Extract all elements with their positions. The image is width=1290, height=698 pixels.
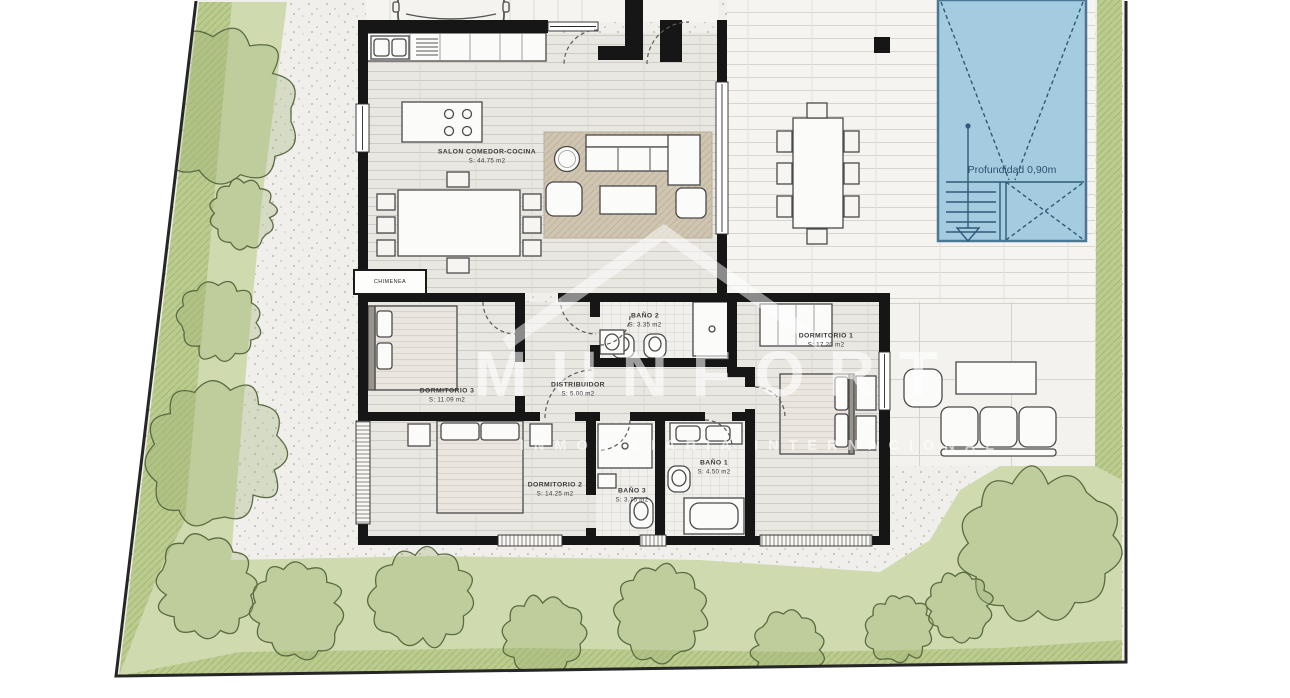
room-area: S: 4.50 m2	[698, 468, 731, 476]
room-label-bano-1: BAÑO 1 S: 4.50 m2	[698, 460, 731, 477]
room-area: S: 5.00 m2	[551, 390, 605, 398]
room-area: S: 3.75 m2	[616, 496, 649, 504]
room-area: S: 17.20 m2	[799, 341, 854, 349]
garden-right-strip	[1095, 0, 1122, 480]
terrace-column	[874, 37, 890, 53]
room-area: S: 14.25 m2	[528, 490, 583, 498]
swimming-pool	[938, 0, 1086, 241]
pool-depth-label: Profundidad 0,90m	[968, 164, 1057, 176]
room-label-distribuidor: DISTRIBUIDOR S: 5.00 m2	[551, 382, 605, 399]
room-name: BAÑO 1	[698, 460, 731, 469]
lounge-chair	[546, 182, 582, 216]
armchair	[676, 188, 706, 218]
room-name: DORMITORIO 3	[420, 388, 475, 397]
room-label-dormitorio-2: DORMITORIO 2 S: 14.25 m2	[528, 482, 583, 499]
room-label-bano-3: BAÑO 3 S: 3.75 m2	[616, 488, 649, 505]
watermark-tagline: INMOBILIARIA INTERNACIONAL	[520, 438, 1004, 454]
room-area: S: 44.75 m2	[438, 157, 536, 165]
room-area: S: 3.35 m2	[629, 321, 662, 329]
room-label-dormitorio-1: DORMITORIO 1 S: 17.20 m2	[799, 333, 854, 350]
bed-dormitorio-3	[368, 306, 457, 390]
room-label-bano-2: BAÑO 2 S: 3.35 m2	[629, 313, 662, 330]
room-name: SALON COMEDOR-COCINA	[438, 149, 536, 158]
room-area: S: 11.09 m2	[420, 396, 475, 404]
room-name: BAÑO 3	[616, 488, 649, 497]
floor-plan-page: MUNFORT INMOBILIARIA INTERNACIONAL SALON…	[0, 0, 1290, 698]
coffee-table	[600, 186, 656, 214]
room-name: DORMITORIO 1	[799, 333, 854, 342]
fireplace-label: CHIMENEA	[374, 279, 406, 285]
louver-window	[356, 421, 370, 524]
watermark-brand: MUNFORT	[474, 337, 962, 411]
room-name: DORMITORIO 2	[528, 482, 583, 491]
room-label-dormitorio-3: DORMITORIO 3 S: 11.09 m2	[420, 388, 475, 405]
room-name: DISTRIBUIDOR	[551, 382, 605, 391]
kitchen-island	[402, 102, 482, 142]
room-label-salon: SALON COMEDOR-COCINA S: 44.75 m2	[438, 149, 536, 166]
room-name: BAÑO 2	[629, 313, 662, 322]
